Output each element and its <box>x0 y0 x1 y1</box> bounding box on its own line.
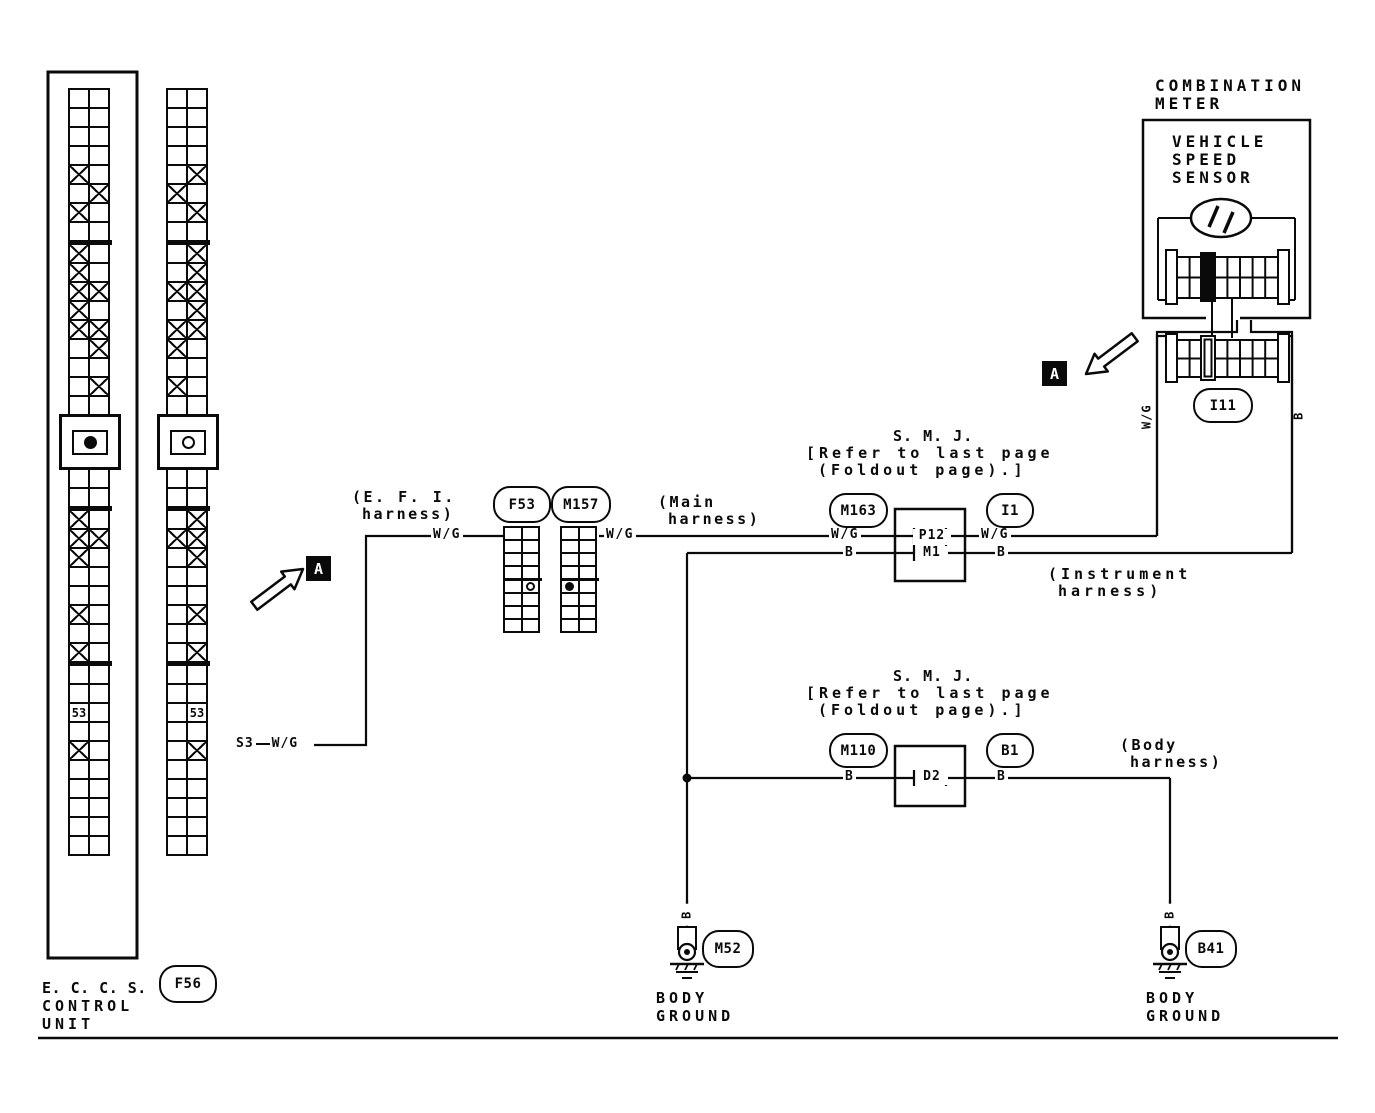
smj-lower-title: S. M. J. <box>893 668 973 685</box>
instrument-harness-label-1: (Instrument <box>1048 566 1191 583</box>
wire-label-b-2: B <box>995 546 1008 561</box>
pin-cell <box>166 262 188 283</box>
efi-harness-label-1: (E. F. I. <box>352 489 456 506</box>
pin-cell-crossed <box>88 319 110 340</box>
wire-junction-dot <box>683 774 692 783</box>
pin-cell-crossed <box>186 319 208 340</box>
main-harness-label-1: (Main <box>658 494 716 511</box>
combination-meter-title-1: COMBINATION <box>1155 77 1305 95</box>
grid-filled-terminal-marker <box>59 414 121 470</box>
pin-cell <box>88 683 110 704</box>
pin-cell <box>88 721 110 742</box>
pin-cell-crossed <box>88 376 110 397</box>
pin-cell <box>88 509 110 530</box>
pin-cell <box>166 202 188 223</box>
wire-label-wg-meter: W/G <box>1140 396 1153 438</box>
pin-cell <box>88 702 110 723</box>
pin-cell-crossed <box>166 376 188 397</box>
m157-pin-grid <box>560 528 599 633</box>
pin-cell <box>186 566 208 587</box>
wire-label-wg-2: W/G <box>604 528 636 543</box>
pin-cell <box>166 721 188 742</box>
pin-cell <box>88 88 110 109</box>
pin-cell <box>166 221 188 242</box>
pin-cell <box>186 797 208 818</box>
pin-cell <box>68 468 90 489</box>
wire-label-b-meter: B <box>1292 405 1305 427</box>
pin-cell <box>166 702 188 723</box>
pin-cell <box>68 338 90 359</box>
pin-cell-crossed <box>68 164 90 185</box>
view-arrow-left-icon <box>248 560 310 614</box>
pin-cell <box>68 623 90 644</box>
smj-lower-note-2: (Foldout page).] <box>818 702 1027 719</box>
body-ground-left-label-1: BODY <box>656 990 708 1007</box>
pin-cell <box>186 145 208 166</box>
pin-cell <box>68 395 90 416</box>
pin-cell <box>166 468 188 489</box>
pin-cell-crossed <box>186 262 208 283</box>
connector-oval-m52: M52 <box>702 930 754 968</box>
pin-cell <box>88 126 110 147</box>
pin-cell <box>88 835 110 856</box>
wire-label-wg-3: W/G <box>829 528 861 543</box>
pin-cell <box>88 816 110 837</box>
pin-cell <box>68 126 90 147</box>
pin-cell <box>166 816 188 837</box>
pin-cell-crossed <box>68 281 90 302</box>
pin-cell <box>88 664 110 685</box>
pin-cell-crossed <box>68 243 90 264</box>
eccs-label-3: UNIT <box>42 1016 94 1033</box>
speed-sensor-ellipse <box>1191 199 1251 237</box>
view-marker-a-right: A <box>1042 361 1067 386</box>
wire-label-wg-4: W/G <box>979 528 1011 543</box>
pin-cell <box>88 395 110 416</box>
pin-cell-crossed <box>88 338 110 359</box>
wire-label-wg-1: W/G <box>431 528 463 543</box>
pin-cell <box>166 585 188 606</box>
pin-cell <box>166 683 188 704</box>
meter-lower-connector-strip <box>1166 334 1289 382</box>
pin-cell-53: 53 <box>186 702 208 723</box>
pin-cell-crossed <box>68 202 90 223</box>
pin-cell-crossed <box>186 528 208 549</box>
pin-cell <box>166 642 188 663</box>
wire-label-b-ground-right: B <box>1163 904 1176 926</box>
pin-cell-crossed <box>166 281 188 302</box>
body-ground-right-label-2: GROUND <box>1146 1008 1224 1025</box>
pin-cell <box>186 376 208 397</box>
pin-cell <box>186 468 208 489</box>
pin-cell-crossed <box>166 338 188 359</box>
pin-cell <box>88 623 110 644</box>
pin-cell <box>68 183 90 204</box>
smj-lower-note-1: [Refer to last page <box>806 685 1054 702</box>
pin-cell <box>166 357 188 378</box>
pin-cell <box>88 164 110 185</box>
pin-cell <box>68 835 90 856</box>
body-ground-right-label-1: BODY <box>1146 990 1198 1007</box>
pin-cell <box>68 107 90 128</box>
pin-cell <box>68 88 90 109</box>
pin-cell <box>88 759 110 780</box>
efi-harness-label-2: harness) <box>362 506 454 523</box>
grid-ring-terminal-marker <box>157 414 219 470</box>
wiring-diagram-page: 53 53 COMBINATION METER VEHICLE SPEED SE… <box>0 0 1375 1113</box>
wire-label-b-1: B <box>843 546 856 561</box>
pin-cell-crossed <box>186 164 208 185</box>
s3-wire-color: W/G <box>272 737 298 752</box>
filled-dot-icon <box>84 436 97 449</box>
pin-cell <box>68 778 90 799</box>
vss-label-2: SPEED <box>1172 151 1240 169</box>
pin-cell <box>186 683 208 704</box>
pin-cell <box>166 759 188 780</box>
pin-cell-crossed <box>166 183 188 204</box>
main-harness-label-2: harness) <box>668 511 760 528</box>
connector-oval-m157: M157 <box>551 486 611 523</box>
pin-cell <box>166 547 188 568</box>
pin-cell <box>68 145 90 166</box>
pin-cell <box>166 778 188 799</box>
pin-cell <box>166 664 188 685</box>
pin-cell-crossed <box>88 528 110 549</box>
eccs-label-2: CONTROL <box>42 998 133 1015</box>
pin-cell <box>68 566 90 587</box>
connector-oval-b1: B1 <box>986 733 1034 768</box>
smj-upper-note-1: [Refer to last page <box>806 445 1054 462</box>
pin-cell <box>88 202 110 223</box>
smj-upper-note-2: (Foldout page).] <box>818 462 1027 479</box>
pin-cell <box>166 164 188 185</box>
ring-icon <box>526 582 535 591</box>
view-marker-a-left: A <box>306 556 331 581</box>
f53-pin-grid <box>503 528 542 633</box>
pin-cell <box>186 487 208 508</box>
instrument-harness-label-2: harness) <box>1058 583 1162 600</box>
pin-cell-crossed <box>68 740 90 761</box>
pin-cell <box>166 835 188 856</box>
pin-cell-crossed <box>68 528 90 549</box>
pin-cell <box>68 797 90 818</box>
pin-cell <box>186 759 208 780</box>
connector-oval-m110: M110 <box>829 733 888 768</box>
pin-cell <box>186 778 208 799</box>
eccs-right-pin-grid: 53 <box>166 90 219 856</box>
pin-cell <box>88 357 110 378</box>
pin-cell <box>166 740 188 761</box>
pin-cell <box>186 664 208 685</box>
pin-cell <box>88 585 110 606</box>
pin-cell <box>166 395 188 416</box>
pin-cell <box>166 107 188 128</box>
pin-cell <box>166 300 188 321</box>
pin-cell <box>521 618 541 633</box>
pin-cell <box>186 721 208 742</box>
pin-cell-crossed <box>186 243 208 264</box>
pin-cell <box>68 221 90 242</box>
dash-line <box>256 743 270 745</box>
s3-wire-label: S3W/G <box>236 737 298 752</box>
pin-cell <box>186 88 208 109</box>
pin-cell <box>88 262 110 283</box>
pin-cell-crossed <box>166 528 188 549</box>
pin-cell <box>88 797 110 818</box>
wire-label-b-ground-left: B <box>680 904 693 926</box>
pin-cell <box>68 585 90 606</box>
pin-cell <box>186 835 208 856</box>
pin-cell <box>186 338 208 359</box>
pin-cell <box>68 683 90 704</box>
connector-oval-f53: F53 <box>493 486 551 523</box>
pin-cell-crossed <box>68 319 90 340</box>
pin-cell-crossed <box>68 300 90 321</box>
wire-label-b-4: B <box>995 770 1008 785</box>
pin-cell <box>68 759 90 780</box>
ring-icon <box>182 436 195 449</box>
pin-cell <box>68 376 90 397</box>
combination-meter-title-2: METER <box>1155 95 1223 113</box>
pin-cell <box>166 604 188 625</box>
pin-cell <box>68 721 90 742</box>
vss-label-1: VEHICLE <box>1172 133 1267 151</box>
pin-cell-crossed <box>186 300 208 321</box>
pin-cell <box>186 816 208 837</box>
meter-upper-connector-strip <box>1166 250 1289 304</box>
pin-cell <box>68 487 90 508</box>
pin-cell-crossed <box>186 202 208 223</box>
pin-cell <box>578 618 598 633</box>
pin-cell <box>68 664 90 685</box>
pin-cell-crossed <box>166 319 188 340</box>
connector-oval-f56: F56 <box>159 965 217 1003</box>
pin-cell <box>166 243 188 264</box>
pin-cell-crossed <box>68 509 90 530</box>
pin-cell-53: 53 <box>68 702 90 723</box>
pin-cell-crossed <box>186 642 208 663</box>
pin-cell <box>166 566 188 587</box>
s3-terminal-label: S3 <box>236 737 254 752</box>
pin-cell <box>166 487 188 508</box>
body-harness-label-1: (Body <box>1120 737 1178 754</box>
wire-s3-to-f53 <box>314 536 503 745</box>
pin-cell-crossed <box>88 183 110 204</box>
pin-cell <box>186 183 208 204</box>
smj-pin-p12: P12 <box>913 529 951 544</box>
vss-label-3: SENSOR <box>1172 169 1254 187</box>
pin-cell <box>88 221 110 242</box>
pin-cell <box>88 145 110 166</box>
pin-cell <box>186 126 208 147</box>
pin-cell <box>88 468 110 489</box>
pin-cell <box>578 565 598 580</box>
pin-cell <box>88 487 110 508</box>
pin-cell <box>186 221 208 242</box>
pin-cell <box>166 797 188 818</box>
pin-cell <box>88 243 110 264</box>
smj-upper-title: S. M. J. <box>893 428 973 445</box>
body-ground-left-label-2: GROUND <box>656 1008 734 1025</box>
pin-cell <box>166 88 188 109</box>
pin-cell <box>68 357 90 378</box>
pin-cell <box>166 509 188 530</box>
pin-cell <box>186 107 208 128</box>
pin-cell <box>88 300 110 321</box>
pin-cell <box>166 623 188 644</box>
pin-cell <box>68 816 90 837</box>
connector-oval-b41: B41 <box>1185 930 1237 968</box>
eccs-left-pin-grid: 53 <box>68 90 121 856</box>
pin-cell-crossed <box>68 547 90 568</box>
connector-oval-i1: I1 <box>986 493 1034 528</box>
meter-pin-filled-slot <box>1201 253 1215 301</box>
pin-cell <box>88 107 110 128</box>
filled-dot-icon <box>565 582 574 591</box>
pin-cell-crossed <box>186 281 208 302</box>
connector-oval-m163: M163 <box>829 493 888 528</box>
pin-cell <box>166 145 188 166</box>
pin-cell <box>88 604 110 625</box>
pin-cell <box>88 547 110 568</box>
pin-cell <box>88 740 110 761</box>
pin-cell <box>166 126 188 147</box>
view-arrow-right-icon <box>1079 329 1141 383</box>
wire-label-b-3: B <box>843 770 856 785</box>
pin-cell <box>186 623 208 644</box>
pin-cell-crossed <box>68 642 90 663</box>
smj-pin-d2: D2 <box>916 770 948 785</box>
pin-cell-crossed <box>68 604 90 625</box>
body-harness-label-2: harness) <box>1130 754 1222 771</box>
smj-pin-m1: M1 <box>916 546 948 561</box>
pin-cell <box>186 357 208 378</box>
eccs-label-1: E. C. C. S. <box>42 980 147 997</box>
pin-cell-crossed <box>186 509 208 530</box>
pin-cell-crossed <box>186 740 208 761</box>
connector-oval-i11: I11 <box>1193 388 1253 423</box>
pin-cell-crossed <box>88 281 110 302</box>
pin-cell-crossed <box>186 547 208 568</box>
pin-cell-crossed <box>68 262 90 283</box>
pin-cell <box>88 566 110 587</box>
pin-cell-crossed <box>186 604 208 625</box>
pin-cell <box>521 565 541 580</box>
pin-cell <box>186 585 208 606</box>
pin-cell <box>88 642 110 663</box>
pin-cell <box>88 778 110 799</box>
pin-cell <box>186 395 208 416</box>
